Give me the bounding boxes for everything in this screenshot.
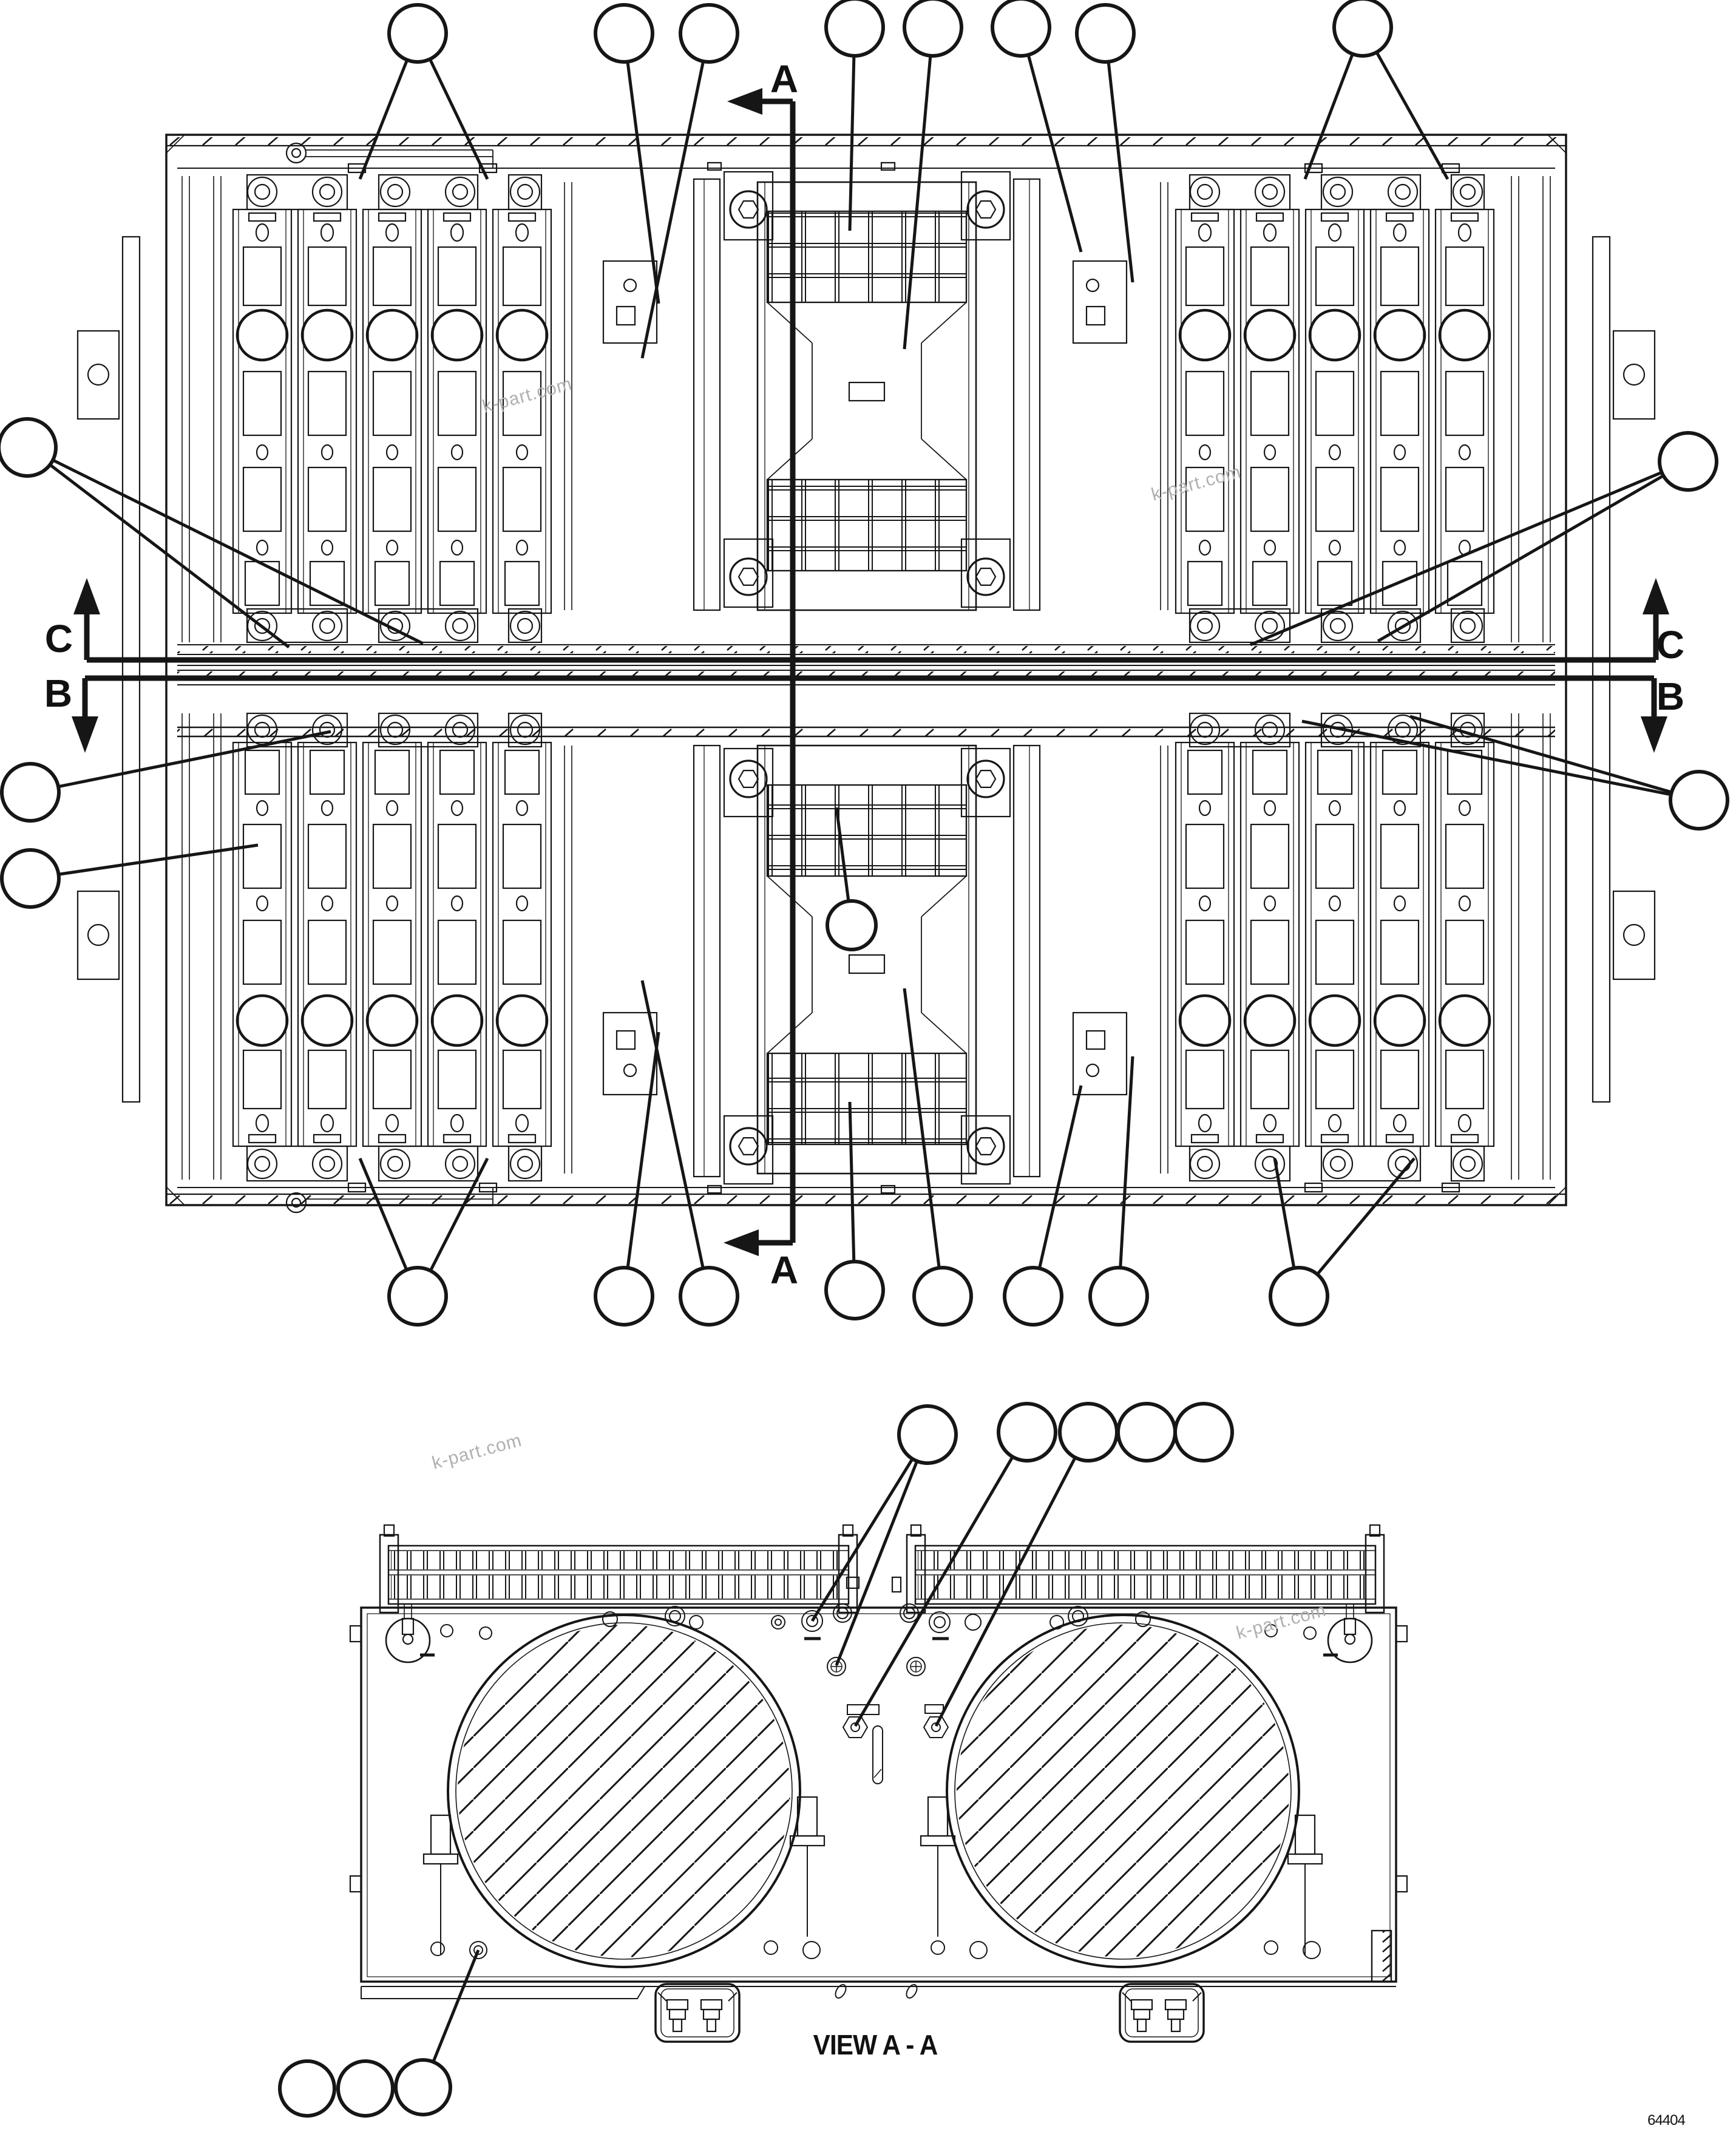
section-label-a-top: A <box>770 57 798 101</box>
top-plan-view <box>72 88 1669 1256</box>
fan-right <box>947 1615 1299 1967</box>
callout-balloon <box>389 1268 446 1325</box>
leader-line <box>30 845 258 878</box>
callout-balloon <box>1060 1404 1117 1461</box>
drawing-number: 64404 <box>1647 2112 1685 2129</box>
upper-half-cores <box>177 143 1555 642</box>
leader-line <box>624 1032 659 1296</box>
callout-balloon <box>280 2061 334 2116</box>
callout-balloon <box>826 0 883 56</box>
callout-balloon <box>1660 433 1717 490</box>
grille-right <box>907 1525 1384 1612</box>
diagram-page: k-part.com k-part.com k-part.com k-part.… <box>0 0 1736 2134</box>
leader-line <box>1378 461 1688 641</box>
section-label-b-right: B <box>1656 675 1684 718</box>
callout-balloon <box>680 5 737 62</box>
callout-balloon <box>899 1406 956 1463</box>
mount-foot-left <box>656 1984 739 2042</box>
callout-balloon <box>1334 0 1391 56</box>
section-label-c-left: C <box>45 617 73 661</box>
callout-balloon <box>992 0 1049 56</box>
leader-line <box>1105 33 1133 282</box>
lower-half-cores <box>177 713 1555 1212</box>
callout-balloon <box>389 5 446 62</box>
callout-balloon <box>826 1262 883 1319</box>
fan-bracket <box>790 1797 824 1937</box>
watermark-text: k-part.com <box>480 374 574 417</box>
callout-balloon <box>1670 772 1728 829</box>
callout-balloon <box>1090 1268 1147 1325</box>
callout-balloon <box>1118 1404 1175 1461</box>
section-label-c-right: C <box>1656 623 1684 667</box>
callout-balloon <box>827 901 876 950</box>
grille-left <box>380 1525 857 1612</box>
section-label-b-left: B <box>44 671 72 715</box>
callout-balloon <box>338 2061 393 2116</box>
leader-line <box>642 33 709 358</box>
callout-balloon <box>595 5 653 62</box>
leader-line <box>836 1435 927 1665</box>
watermark-text: k-part.com <box>1149 462 1243 505</box>
leader-line <box>642 980 709 1296</box>
callout-balloon <box>0 419 56 476</box>
callout-balloon <box>1270 1268 1327 1325</box>
callout-balloon <box>595 1268 653 1325</box>
leader-line <box>812 1435 927 1621</box>
callout-balloon <box>680 1268 737 1325</box>
leader-line <box>850 27 855 231</box>
callout-balloon <box>914 1268 971 1325</box>
callout-balloon <box>999 1404 1056 1461</box>
mount-foot-right <box>1120 1984 1204 2042</box>
leader-line <box>1119 1056 1133 1296</box>
fan-bracket <box>424 1815 458 1955</box>
section-label-a-bottom: A <box>770 1248 798 1292</box>
view-a-a <box>350 1525 1407 2042</box>
callout-balloon <box>396 2060 450 2115</box>
callout-balloon <box>1077 5 1134 62</box>
callout-balloon <box>904 0 961 56</box>
fan-left <box>448 1615 800 1967</box>
callout-balloon <box>2 850 59 907</box>
callout-balloon <box>2 764 59 821</box>
callout-balloon <box>1005 1268 1062 1325</box>
callout-balloon <box>1175 1404 1232 1461</box>
view-title: VIEW A - A <box>813 2030 938 2061</box>
watermark-text: k-part.com <box>430 1430 524 1473</box>
parts-diagram-svg: k-part.com k-part.com k-part.com k-part.… <box>0 0 1736 2134</box>
